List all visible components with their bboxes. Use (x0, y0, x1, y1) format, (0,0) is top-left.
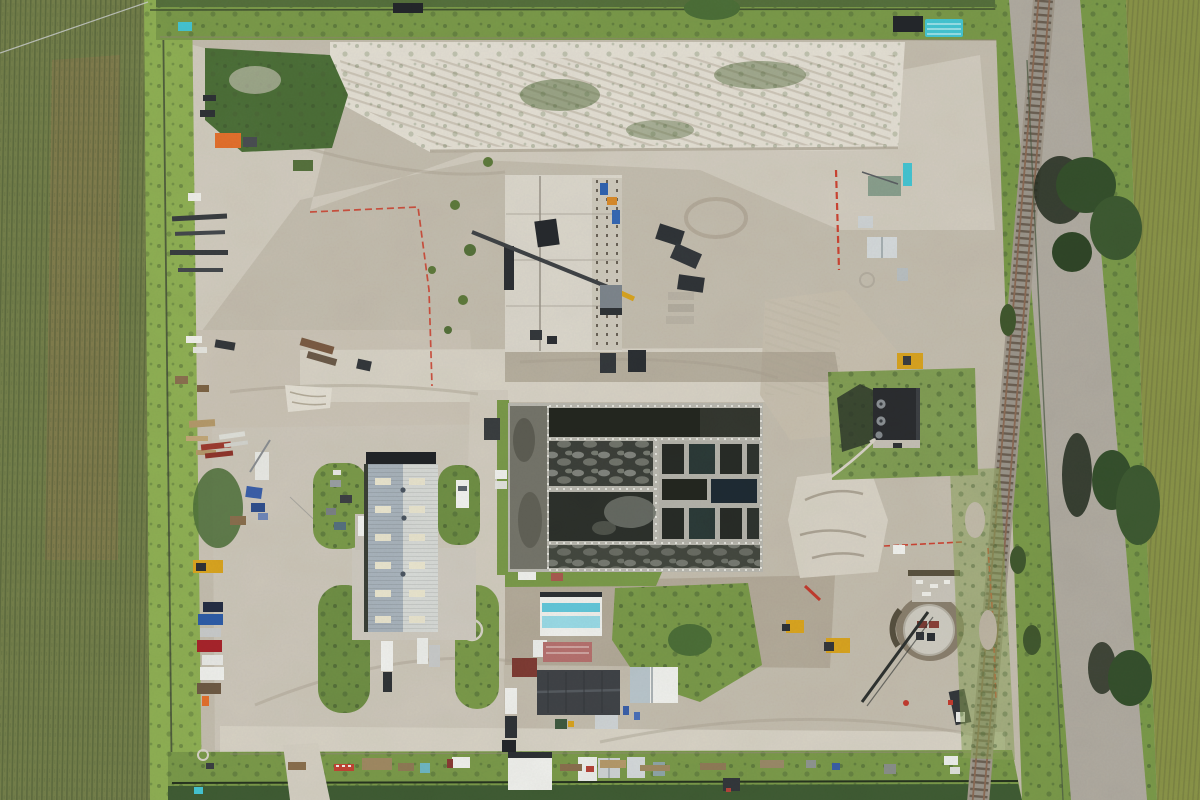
aerial-photo (0, 0, 1200, 800)
aerial-photo-canvas (0, 0, 1200, 800)
fine-grain-overlay (0, 0, 1200, 800)
